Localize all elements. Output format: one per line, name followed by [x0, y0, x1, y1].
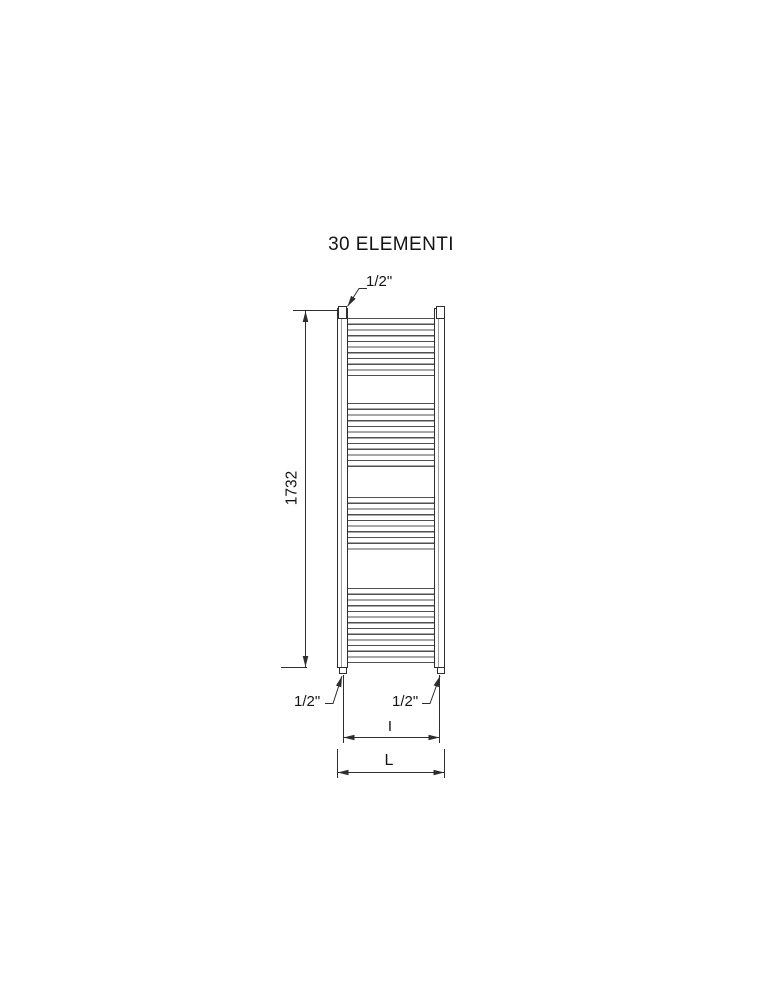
bottom-left-connection-label: 1/2": [294, 694, 320, 709]
bottom-left-connection-leader: [325, 676, 342, 704]
interaxis-dimension-label: I: [388, 719, 392, 734]
technical-drawing: 30 ELEMENTI: [0, 0, 771, 1000]
bottom-right-connection-leader: [422, 676, 440, 704]
top-connection-label: 1/2": [366, 274, 392, 289]
bottom-right-connection-label: 1/2": [392, 694, 418, 709]
top-connection-leader: [348, 289, 368, 307]
height-dimension-label: 1732: [284, 471, 300, 505]
dimension-lines: [0, 0, 771, 1000]
width-dimension-label: L: [385, 753, 394, 769]
